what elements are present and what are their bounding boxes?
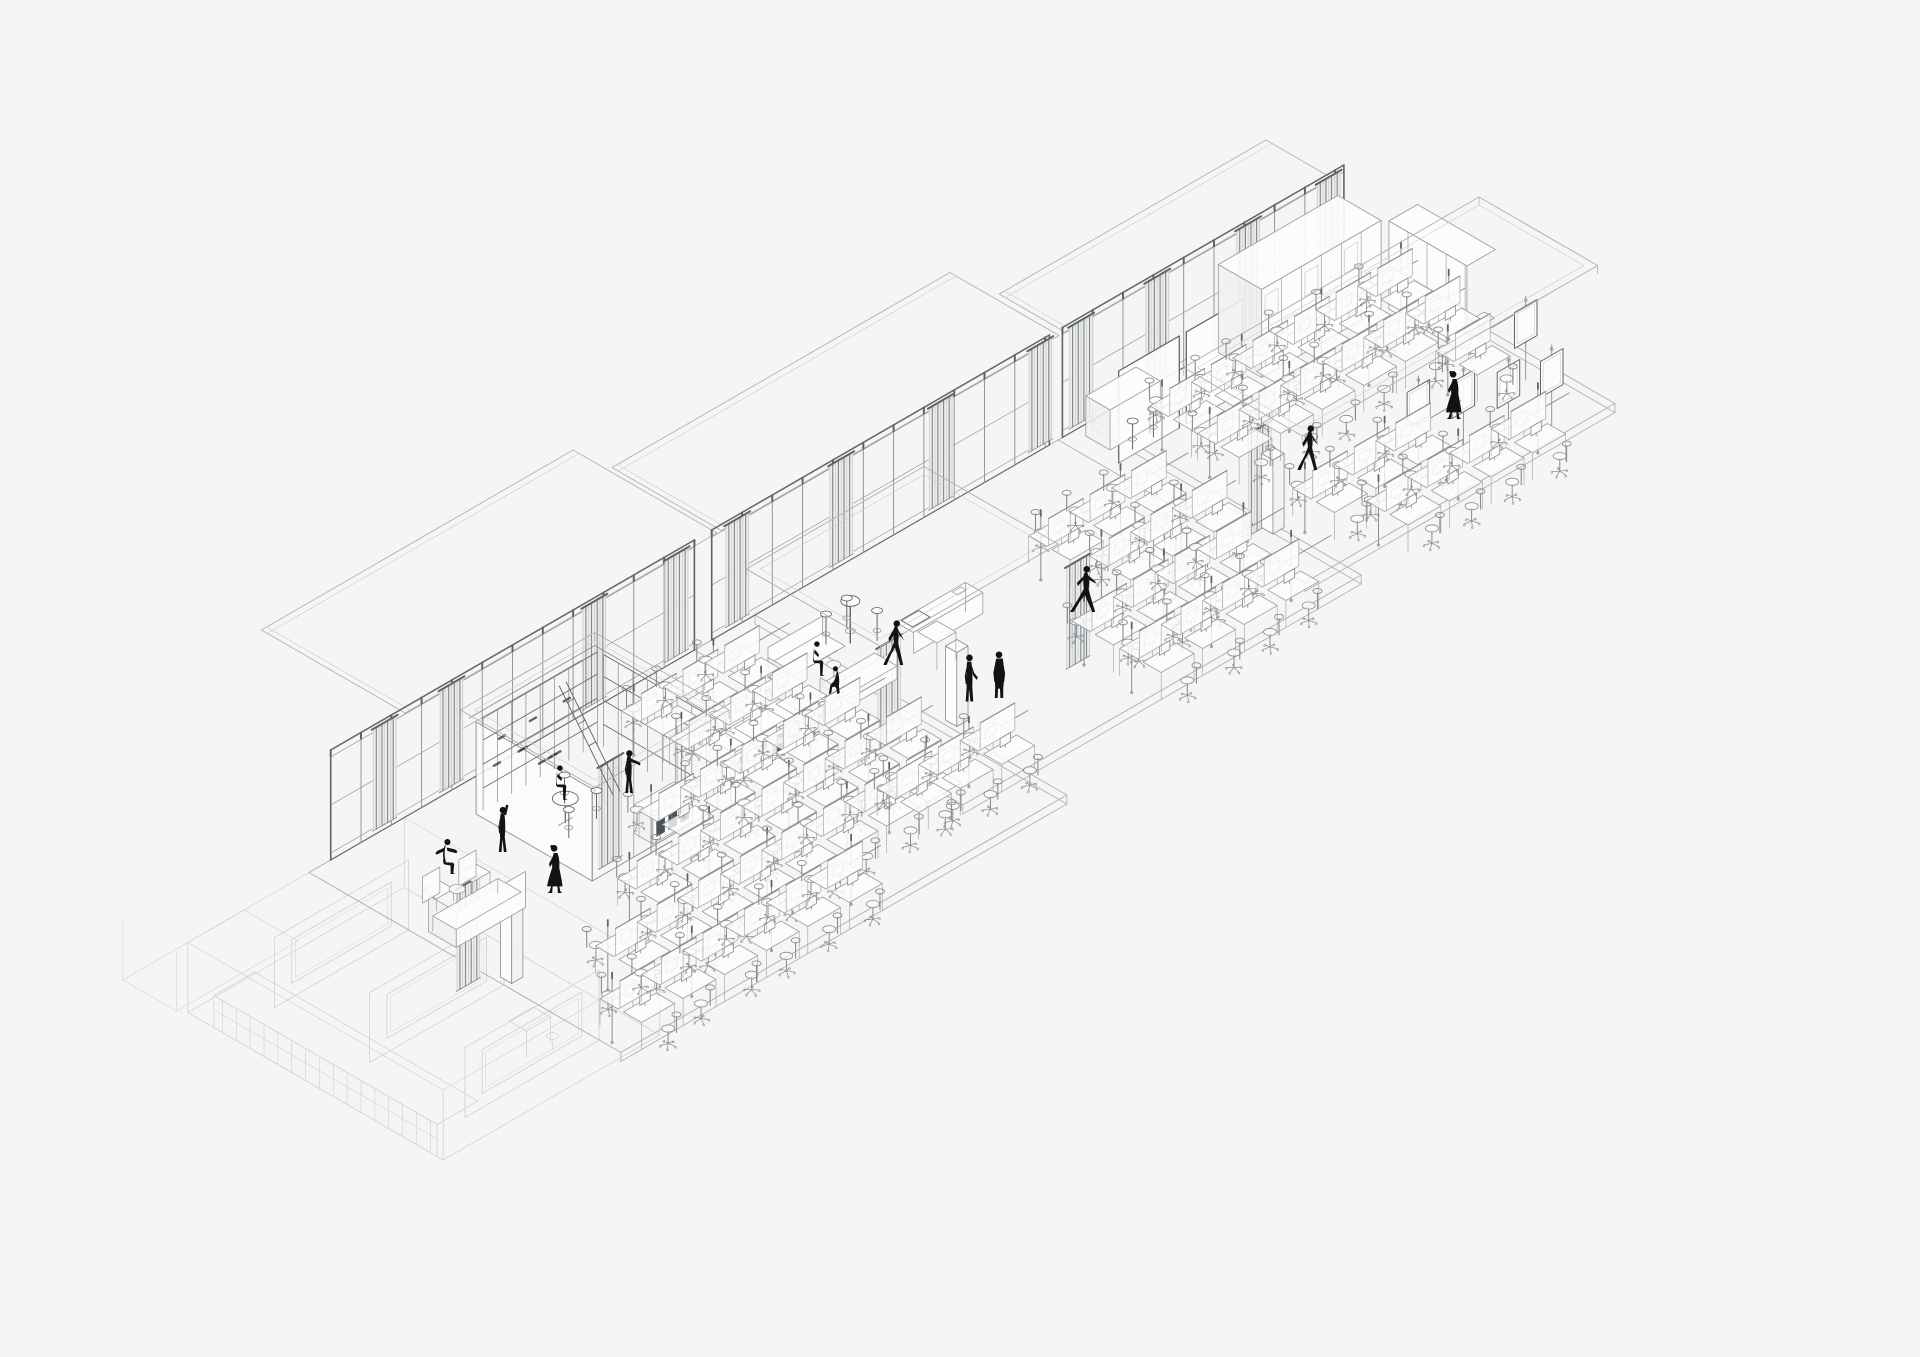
task-chair bbox=[1551, 441, 1571, 478]
curtain-panel bbox=[664, 546, 690, 663]
task-chair bbox=[743, 961, 761, 997]
person-silhouette-standing-figure-coat bbox=[993, 651, 1005, 698]
task-chair bbox=[1423, 512, 1444, 550]
roof-plate bbox=[746, 467, 1058, 655]
stool bbox=[872, 608, 883, 641]
task-chair bbox=[1021, 754, 1042, 792]
bar-table bbox=[821, 595, 883, 644]
task-chair bbox=[779, 938, 800, 978]
task-chair bbox=[864, 889, 885, 926]
axonometric-office-drawing bbox=[0, 0, 1920, 1357]
curtain-panel bbox=[928, 394, 954, 511]
task-chair bbox=[1179, 663, 1201, 703]
task-chair bbox=[820, 913, 842, 952]
task-chair bbox=[902, 814, 924, 853]
task-chair bbox=[659, 1012, 681, 1051]
task-chair bbox=[1262, 614, 1284, 654]
eave-plate bbox=[261, 450, 717, 713]
person-silhouette-walking-figure bbox=[1297, 425, 1318, 470]
task-chair bbox=[1339, 400, 1361, 441]
curtain-panel bbox=[439, 676, 465, 793]
drawing-canvas bbox=[0, 0, 1920, 1357]
task-chair bbox=[1463, 489, 1485, 529]
task-chair bbox=[1225, 638, 1244, 674]
curtain-panel bbox=[372, 715, 398, 832]
curtain-panel bbox=[1027, 336, 1053, 453]
